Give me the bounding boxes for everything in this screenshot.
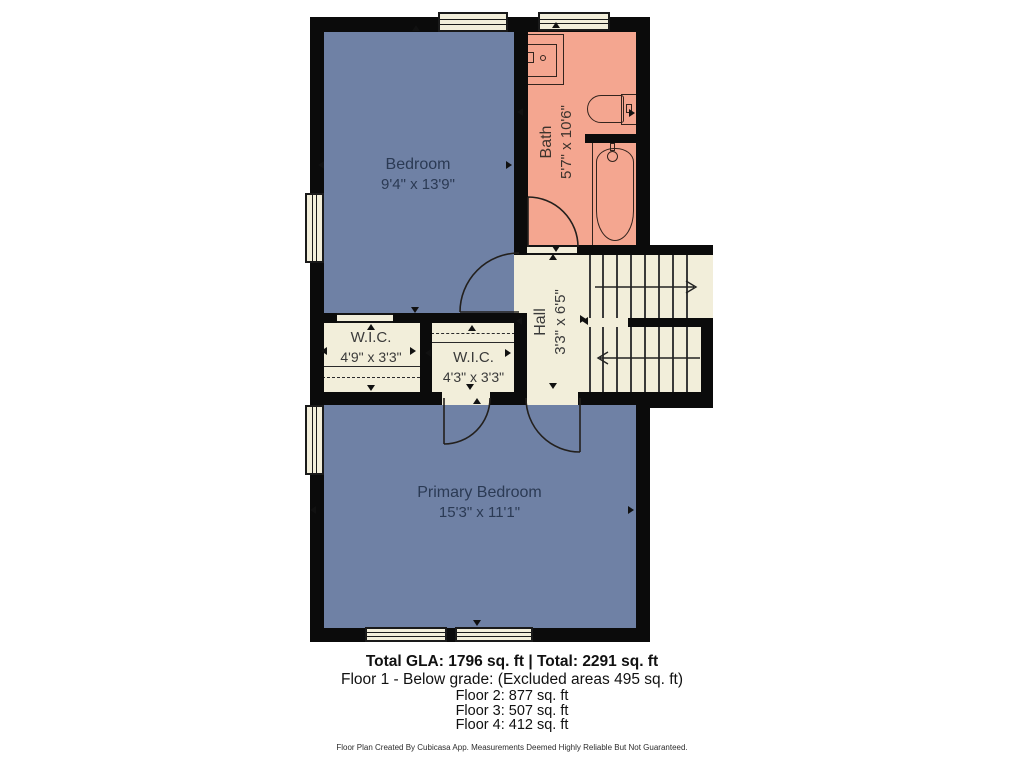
- dimension-arrow: [473, 398, 481, 404]
- disclaimer: Floor Plan Created By Cubicasa App. Meas…: [0, 743, 1024, 752]
- dimension-arrow: [582, 317, 588, 325]
- dimension-arrow: [473, 620, 481, 626]
- room-name: Bedroom: [318, 155, 518, 175]
- stairs-up-arrow: [595, 281, 696, 293]
- floor2-line: Floor 2: 877 sq. ft: [0, 689, 1024, 704]
- door-bedroom-hall: [460, 253, 519, 312]
- room-dims: 15'3" x 11'1": [439, 504, 520, 521]
- primary-bedroom-label: Primary Bedroom 15'3" x 11'1": [322, 483, 637, 523]
- total-gla-line: Total GLA: 1796 sq. ft | Total: 2291 sq.…: [0, 652, 1024, 671]
- room-name: W.I.C.: [431, 349, 516, 368]
- room-dims: 4'3" x 3'3": [443, 369, 504, 385]
- door-wic-primary: [444, 398, 490, 444]
- area-summary: Total GLA: 1796 sq. ft | Total: 2291 sq.…: [0, 652, 1024, 733]
- bath-label: Bath 5'7" x 10'6": [537, 57, 579, 227]
- floor4-line: Floor 4: 412 sq. ft: [0, 718, 1024, 733]
- floor1-line: Floor 1 - Below grade: (Excluded areas 4…: [0, 671, 1024, 689]
- room-dims: 5'7" x 10'6": [558, 105, 575, 179]
- dimension-arrow: [412, 25, 420, 31]
- room-name: Bath: [537, 57, 557, 227]
- room-dims: 4'9" x 3'3": [340, 349, 401, 365]
- dimension-arrow: [310, 506, 316, 514]
- floor3-line: Floor 3: 507 sq. ft: [0, 704, 1024, 719]
- wic-left-label: W.I.C. 4'9" x 3'3": [322, 329, 420, 368]
- dimension-arrow: [516, 317, 522, 325]
- dimension-arrow: [468, 325, 476, 331]
- door-hall-primary: [526, 398, 580, 452]
- room-dims: 3'3" x 6'5": [552, 289, 569, 355]
- dimension-arrow: [517, 108, 523, 116]
- room-name: Primary Bedroom: [322, 483, 637, 503]
- wic-middle-label: W.I.C. 4'3" x 3'3": [431, 349, 516, 388]
- dimension-arrow: [367, 385, 375, 391]
- floor-plan-page: Bedroom 9'4" x 13'9" Bath 5'7" x 10'6" W…: [0, 0, 1024, 768]
- bedroom-label: Bedroom 9'4" x 13'9": [318, 155, 518, 195]
- room-name: W.I.C.: [322, 329, 420, 348]
- room-name: Hall: [531, 247, 551, 397]
- dimension-arrow: [411, 307, 419, 313]
- room-dims: 9'4" x 13'9": [381, 176, 455, 193]
- dimension-arrow: [552, 22, 560, 28]
- dimension-arrow: [629, 109, 635, 117]
- stairs-down-arrow: [598, 352, 700, 364]
- hall-label: Hall 3'3" x 6'5": [531, 247, 573, 397]
